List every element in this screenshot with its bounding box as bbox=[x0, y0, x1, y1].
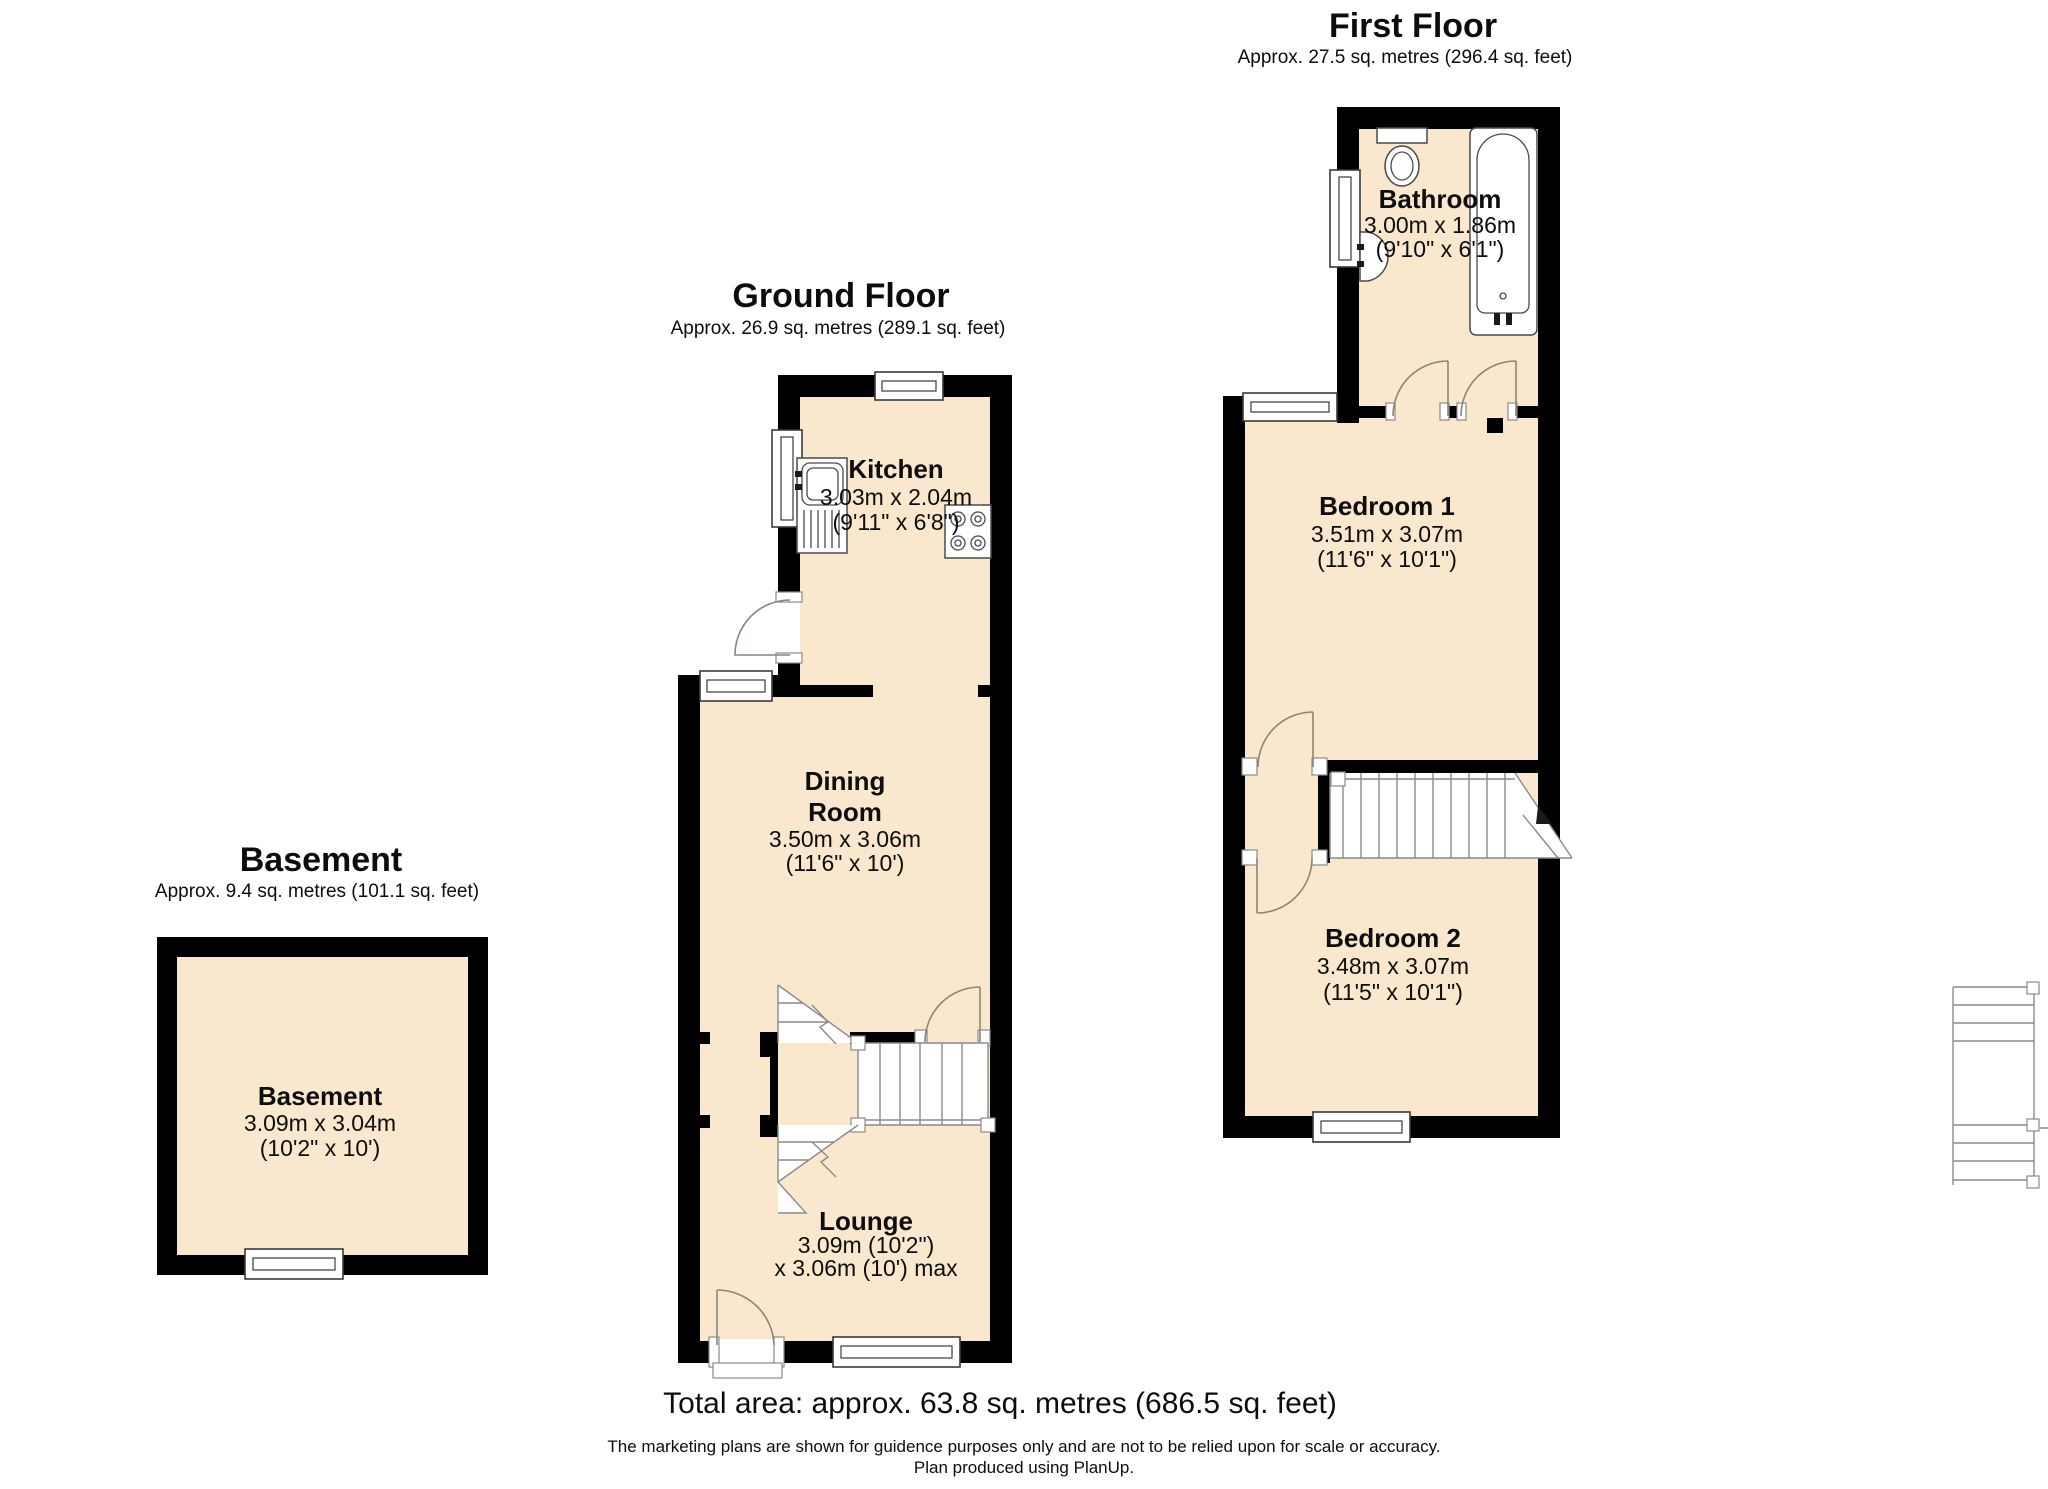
svg-text:Bedroom 2: Bedroom 2 bbox=[1325, 923, 1461, 953]
tap-icon bbox=[795, 484, 802, 490]
svg-text:Bedroom 1: Bedroom 1 bbox=[1319, 491, 1455, 521]
disclaimer-text: The marketing plans are shown for guiden… bbox=[607, 1437, 1440, 1456]
tap-icon bbox=[1494, 313, 1500, 325]
svg-text:3.48m x 3.07m: 3.48m x 3.07m bbox=[1317, 953, 1469, 979]
basement-window bbox=[245, 1249, 343, 1279]
newel-post bbox=[2027, 982, 2039, 994]
svg-text:(11'5" x 10'1"): (11'5" x 10'1") bbox=[1323, 979, 1463, 1005]
bedroom1-label: Bedroom 1 3.51m x 3.07m (11'6" x 10'1") bbox=[1311, 491, 1463, 572]
tap-icon bbox=[1357, 261, 1364, 267]
basement-plan: Basement Approx. 9.4 sq. metres (101.1 s… bbox=[155, 841, 488, 1279]
bedroom1-window bbox=[1243, 393, 1337, 421]
bathroom-label: Bathroom 3.00m x 1.86m (9'10" x 6'1") bbox=[1364, 184, 1516, 262]
lounge-front-window bbox=[833, 1337, 960, 1367]
bedroom2-label: Bedroom 2 3.48m x 3.07m (11'5" x 10'1") bbox=[1317, 923, 1469, 1005]
newel-post bbox=[981, 1118, 995, 1132]
svg-text:3.51m x 3.07m: 3.51m x 3.07m bbox=[1311, 521, 1463, 547]
ground-floor-title: Ground Floor bbox=[732, 277, 949, 315]
svg-text:Bathroom: Bathroom bbox=[1379, 184, 1502, 214]
bathroom-window bbox=[1330, 170, 1360, 267]
svg-text:Dining: Dining bbox=[805, 766, 886, 796]
footer: Total area: approx. 63.8 sq. metres (686… bbox=[607, 1387, 1440, 1477]
svg-text:(9'11" x 6'8"): (9'11" x 6'8") bbox=[833, 509, 960, 535]
basement-area-label: Approx. 9.4 sq. metres (101.1 sq. feet) bbox=[155, 881, 479, 902]
first-floor-title: First Floor bbox=[1329, 7, 1497, 45]
floorplan-page: Basement Approx. 9.4 sq. metres (101.1 s… bbox=[0, 0, 2048, 1489]
tap-icon bbox=[795, 471, 802, 477]
svg-text:x 3.06m (10') max: x 3.06m (10') max bbox=[774, 1255, 958, 1281]
svg-text:(11'6" x 10'1"): (11'6" x 10'1") bbox=[1317, 546, 1457, 572]
svg-text:3.09m x 3.04m: 3.09m x 3.04m bbox=[244, 1110, 396, 1136]
clipped-staircase-fragment bbox=[1953, 982, 2048, 1188]
svg-text:3.50m x 3.06m: 3.50m x 3.06m bbox=[769, 826, 921, 852]
svg-text:(10'2" x 10'): (10'2" x 10') bbox=[260, 1135, 381, 1161]
kitchen-side-door bbox=[735, 592, 802, 663]
total-area-label: Total area: approx. 63.8 sq. metres (686… bbox=[663, 1387, 1337, 1420]
tap-icon bbox=[1506, 313, 1512, 325]
ground-floor-area-label: Approx. 26.9 sq. metres (289.1 sq. feet) bbox=[671, 318, 1006, 339]
floorplan-drawing: Basement Approx. 9.4 sq. metres (101.1 s… bbox=[0, 0, 2048, 1489]
svg-text:Basement: Basement bbox=[258, 1081, 383, 1111]
bedroom2-window bbox=[1313, 1112, 1410, 1142]
svg-text:Room: Room bbox=[808, 797, 882, 827]
ground-floor-plan: Ground Floor Approx. 26.9 sq. metres (28… bbox=[671, 277, 1012, 1378]
svg-text:3.03m x 2.04m: 3.03m x 2.04m bbox=[820, 484, 972, 510]
dining-side-window bbox=[700, 671, 772, 701]
basement-room-label: Basement 3.09m x 3.04m (10'2" x 10') bbox=[244, 1081, 396, 1161]
newel-post bbox=[1331, 772, 1345, 786]
svg-text:(11'6" x 10'): (11'6" x 10') bbox=[786, 850, 905, 876]
svg-text:3.00m x 1.86m: 3.00m x 1.86m bbox=[1364, 212, 1516, 238]
basement-title: Basement bbox=[240, 841, 403, 879]
newel-post bbox=[2027, 1176, 2039, 1188]
first-floor-plan: First Floor Approx. 27.5 sq. metres (296… bbox=[1223, 7, 1572, 1142]
produced-by-text: Plan produced using PlanUp. bbox=[914, 1458, 1134, 1477]
newel-post bbox=[851, 1036, 865, 1050]
svg-text:Kitchen: Kitchen bbox=[848, 454, 943, 484]
tap-icon bbox=[1357, 244, 1364, 250]
svg-text:(9'10" x 6'1"): (9'10" x 6'1") bbox=[1376, 236, 1505, 262]
door-arc bbox=[735, 600, 790, 655]
first-floor-area-label: Approx. 27.5 sq. metres (296.4 sq. feet) bbox=[1238, 47, 1573, 68]
newel-post bbox=[2027, 1119, 2039, 1131]
kitchen-window bbox=[875, 372, 943, 400]
